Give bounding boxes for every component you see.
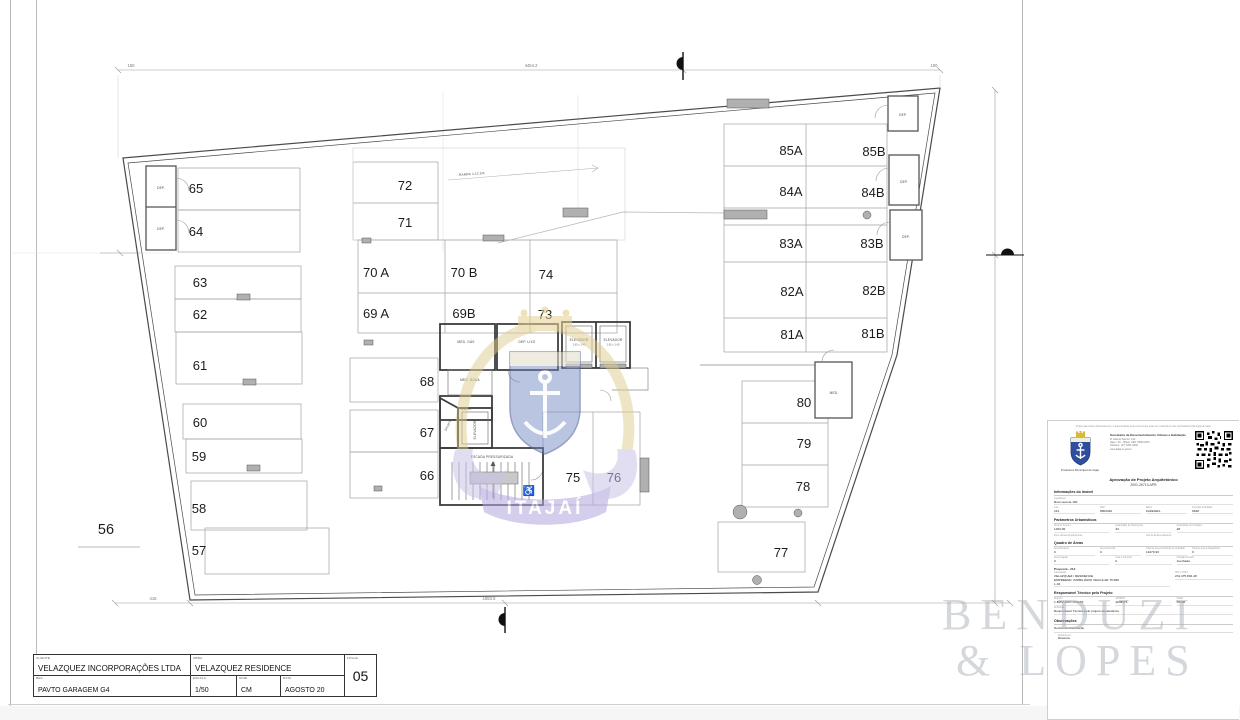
approval-panel: Projeto aprovado eletronicamente. A aute… (1047, 420, 1239, 720)
stall-label: 70 A (363, 265, 389, 280)
dim-label: 4454.2 (525, 63, 538, 68)
field-value: 1463.06 (1054, 528, 1110, 533)
stall-label: 57 (192, 543, 206, 558)
field-value: Diretoria (1058, 637, 1233, 641)
sheet-number-label: FOLHA (347, 656, 358, 660)
stall-label: 70 B (451, 265, 478, 280)
project-name: VELAZQUEZ RESIDENCE (195, 664, 291, 673)
room-label: ELEVADOR (570, 338, 589, 342)
construction-lines (12, 92, 578, 253)
field-value: Averbada (1177, 560, 1233, 565)
sheet-number: 05 (353, 668, 369, 684)
room-dim: 1.60 x 1.40 (607, 343, 620, 347)
room-label: DUTO (461, 407, 471, 411)
columns-grilles (237, 99, 871, 585)
field-value: 0 (1054, 560, 1110, 565)
stall-label: 68 (420, 374, 434, 389)
drawing-sheet: 150 4454.2 150 415 1983.5 (0, 0, 1240, 720)
section-urban-parameters: Parâmetros Urbanísticos (1054, 518, 1233, 524)
scale-label: ESCALA (193, 676, 206, 680)
stall-label: 62 (193, 307, 207, 322)
field-value: 231.475.802-48 (1175, 575, 1233, 580)
stall-label: 77 (774, 545, 788, 560)
dim-label: 150 (128, 63, 136, 68)
stall-label: 78 (796, 479, 810, 494)
scale-value: 1/50 (195, 687, 209, 694)
stall-label: 59 (192, 449, 206, 464)
room-label: SHAFT (444, 420, 453, 432)
stall-label: 58 (192, 501, 206, 516)
sheet-subject: PAVTO GARAGEM G4 (38, 687, 110, 694)
client-name: VELAZQUEZ INCORPORAÇÕES LTDA (38, 664, 181, 673)
stall-label: 80 (797, 395, 811, 410)
section-markers (499, 52, 1025, 633)
wheelchair-icon: ♿ (523, 484, 535, 497)
stall-label: 85B (862, 144, 885, 159)
field-value: 0 (1115, 560, 1171, 565)
sheet-frame (8, 0, 1030, 707)
stall-label: 81B (861, 326, 884, 341)
stall-label: 76 (607, 470, 621, 485)
site-boundary (123, 88, 940, 600)
stall-label: 84B (861, 185, 884, 200)
stall-label: 61 (193, 358, 207, 373)
room-label: DEP. (900, 180, 908, 184)
dim-label: 415 (150, 596, 158, 601)
stall-label: 64 (189, 224, 203, 239)
stall-label: 81A (780, 327, 803, 342)
room-label: DEP. (157, 186, 165, 190)
field-value: FAZENDA (1146, 510, 1187, 515)
field-value: 34 (1115, 528, 1171, 533)
unit-value: CM (241, 687, 252, 694)
stall-label: 83A (779, 236, 802, 251)
field-value: Rua Laconia 100 (1054, 501, 1233, 506)
stall-label: 56 (98, 522, 114, 538)
stall-label: 82A (780, 284, 803, 299)
section-property-info: Informações do Imóvel (1054, 490, 1233, 496)
stall-label: 72 (398, 178, 412, 193)
core-walls (440, 322, 630, 505)
panel-website: www.itajai.sc.gov.br (1110, 448, 1191, 451)
section-observations: Observações (1054, 619, 1233, 625)
section-area-table: Quadro de Áreas (1054, 541, 1233, 547)
date-value: AGOSTO 20 (285, 687, 325, 694)
panel-org-name: Prefeitura Municipal de Itajaí (1054, 469, 1106, 473)
stall-label: 83B (860, 236, 883, 251)
room-label: DEP. (157, 227, 165, 231)
room-label: DEP. (899, 113, 907, 117)
dim-label: 150 (931, 63, 939, 68)
field-label: Zona Urbana Predominante (1054, 535, 1141, 538)
field-value: 0 (1100, 551, 1141, 556)
room-label: MED. GÁS (457, 340, 474, 344)
approval-title: Aprovação de Projeto Arquitetônico (1054, 477, 1233, 482)
title-block: CLIENTE VELAZQUEZ INCORPORAÇÕES LTDA OBR… (33, 654, 377, 697)
stall-label: 69 A (363, 306, 389, 321)
room-label: DEP. (902, 235, 910, 239)
qr-code (1195, 431, 1233, 469)
section-responsible: Responsável Técnico pelo Projeto (1054, 591, 1233, 597)
field-value: 28 (1177, 528, 1233, 533)
date-label: DATA (283, 676, 291, 680)
observations-text: Nenhuma observação (1054, 626, 1233, 630)
field-value: 55236 (1177, 601, 1233, 606)
field-value: 8803440 (1100, 510, 1141, 515)
sheet-number-cell: FOLHA 05 (344, 655, 376, 696)
stall-label: 82B (862, 283, 885, 298)
room-label: DEP. LIXO (519, 340, 536, 344)
panel-disclaimer: Projeto aprovado eletronicamente. A aute… (1054, 425, 1233, 428)
stall-label: 71 (398, 215, 412, 230)
unit-label: UNID. (239, 676, 248, 680)
field-value: 14279.93 (1146, 551, 1187, 556)
field-value: 0 (1192, 551, 1233, 556)
field-value: 9648 (1192, 510, 1233, 515)
stall-label: 75 (566, 470, 580, 485)
stall-label: 73 (538, 307, 552, 322)
stall-label: 69B (452, 306, 475, 321)
field-value: 4208675 (1115, 601, 1171, 606)
approval-number: 2001-26713-APR (1054, 483, 1233, 487)
stall-label: 67 (420, 425, 434, 440)
stall-label: 63 (193, 275, 207, 290)
stall-label: 84A (779, 184, 802, 199)
room-label: MED. (830, 391, 839, 395)
project-label: OBRA (193, 656, 202, 660)
stall-label: 79 (797, 436, 811, 451)
ref-label: REF. (36, 676, 43, 680)
field-value: L-04 (1054, 583, 1170, 588)
room-label: ELEVADOR (473, 420, 477, 439)
field-value: Responsável Técnico pelo projeto arquite… (1054, 610, 1233, 615)
field-value: 212 (1054, 510, 1095, 515)
stall-label: 60 (193, 415, 207, 430)
field-label: Uso do Empreendimento (1146, 535, 1233, 538)
stall-label: 74 (539, 267, 553, 282)
municipal-crest-icon (1067, 431, 1094, 467)
field-value: 0 (1054, 551, 1095, 556)
room-label: ESCADA PRESSURIZADA (471, 455, 514, 459)
proposal-heading: Proposta - 212 (1054, 567, 1233, 571)
stall-label: 66 (420, 468, 434, 483)
client-label: CLIENTE (36, 656, 50, 660)
stall-labels: 65 64 63 62 61 60 59 58 57 56 72 71 70 A… (98, 143, 886, 560)
room-label: MED. ÁGUA (460, 378, 480, 382)
stair-landing (470, 472, 518, 484)
room-label: ELEVADOR (604, 338, 623, 342)
stall-label: 65 (189, 181, 203, 196)
ramp-annotation: RAMPA i=12,5% (459, 171, 485, 177)
dim-label: 1983.5 (483, 596, 496, 601)
room-dim: 1.60 x 1.40 (573, 343, 586, 347)
stall-label: 85A (779, 143, 802, 158)
field-value: 1-BWV-2007-VRU/53 (1054, 601, 1110, 606)
